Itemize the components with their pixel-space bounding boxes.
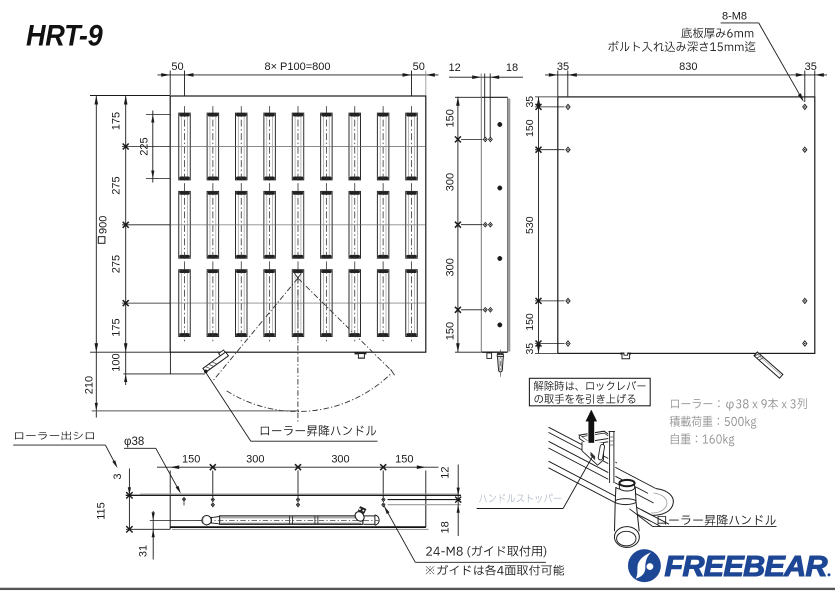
svg-text:300: 300 — [445, 173, 457, 191]
svg-text:35: 35 — [524, 96, 536, 108]
svg-text:225: 225 — [139, 137, 151, 155]
svg-text:12: 12 — [440, 466, 452, 478]
svg-text:150: 150 — [445, 109, 457, 127]
svg-text:530: 530 — [524, 216, 536, 234]
svg-text:175: 175 — [111, 318, 123, 336]
svg-text:150: 150 — [395, 453, 413, 465]
svg-text:18: 18 — [440, 521, 452, 533]
svg-text:210: 210 — [84, 376, 96, 394]
svg-text:35: 35 — [805, 61, 817, 73]
svg-text:275: 275 — [111, 176, 123, 194]
svg-text:150: 150 — [524, 119, 536, 137]
svg-text:50: 50 — [171, 61, 183, 73]
svg-text:35: 35 — [524, 343, 536, 355]
svg-text:8-M8: 8-M8 — [722, 11, 747, 23]
svg-text:50: 50 — [413, 61, 425, 73]
svg-text:150: 150 — [182, 453, 200, 465]
svg-text:HRT-9: HRT-9 — [26, 19, 103, 52]
svg-text:φ38: φ38 — [124, 436, 144, 448]
svg-text:100: 100 — [111, 353, 123, 371]
svg-text:31: 31 — [138, 545, 150, 557]
svg-text:8× P100=800: 8× P100=800 — [264, 61, 330, 73]
svg-text:300: 300 — [331, 453, 349, 465]
svg-text:830: 830 — [679, 61, 697, 73]
svg-text:175: 175 — [111, 112, 123, 130]
svg-text:900: 900 — [98, 216, 110, 234]
svg-text:18: 18 — [506, 62, 518, 74]
svg-text:35: 35 — [557, 61, 569, 73]
svg-text:150: 150 — [445, 322, 457, 340]
svg-text:150: 150 — [524, 313, 536, 331]
svg-text:300: 300 — [445, 258, 457, 276]
svg-text:115: 115 — [96, 502, 108, 520]
svg-text:275: 275 — [111, 255, 123, 273]
svg-text:300: 300 — [246, 453, 264, 465]
svg-text:FREEBEAR: FREEBEAR — [665, 551, 829, 583]
svg-text:3: 3 — [112, 473, 124, 479]
svg-text:12: 12 — [448, 62, 460, 74]
